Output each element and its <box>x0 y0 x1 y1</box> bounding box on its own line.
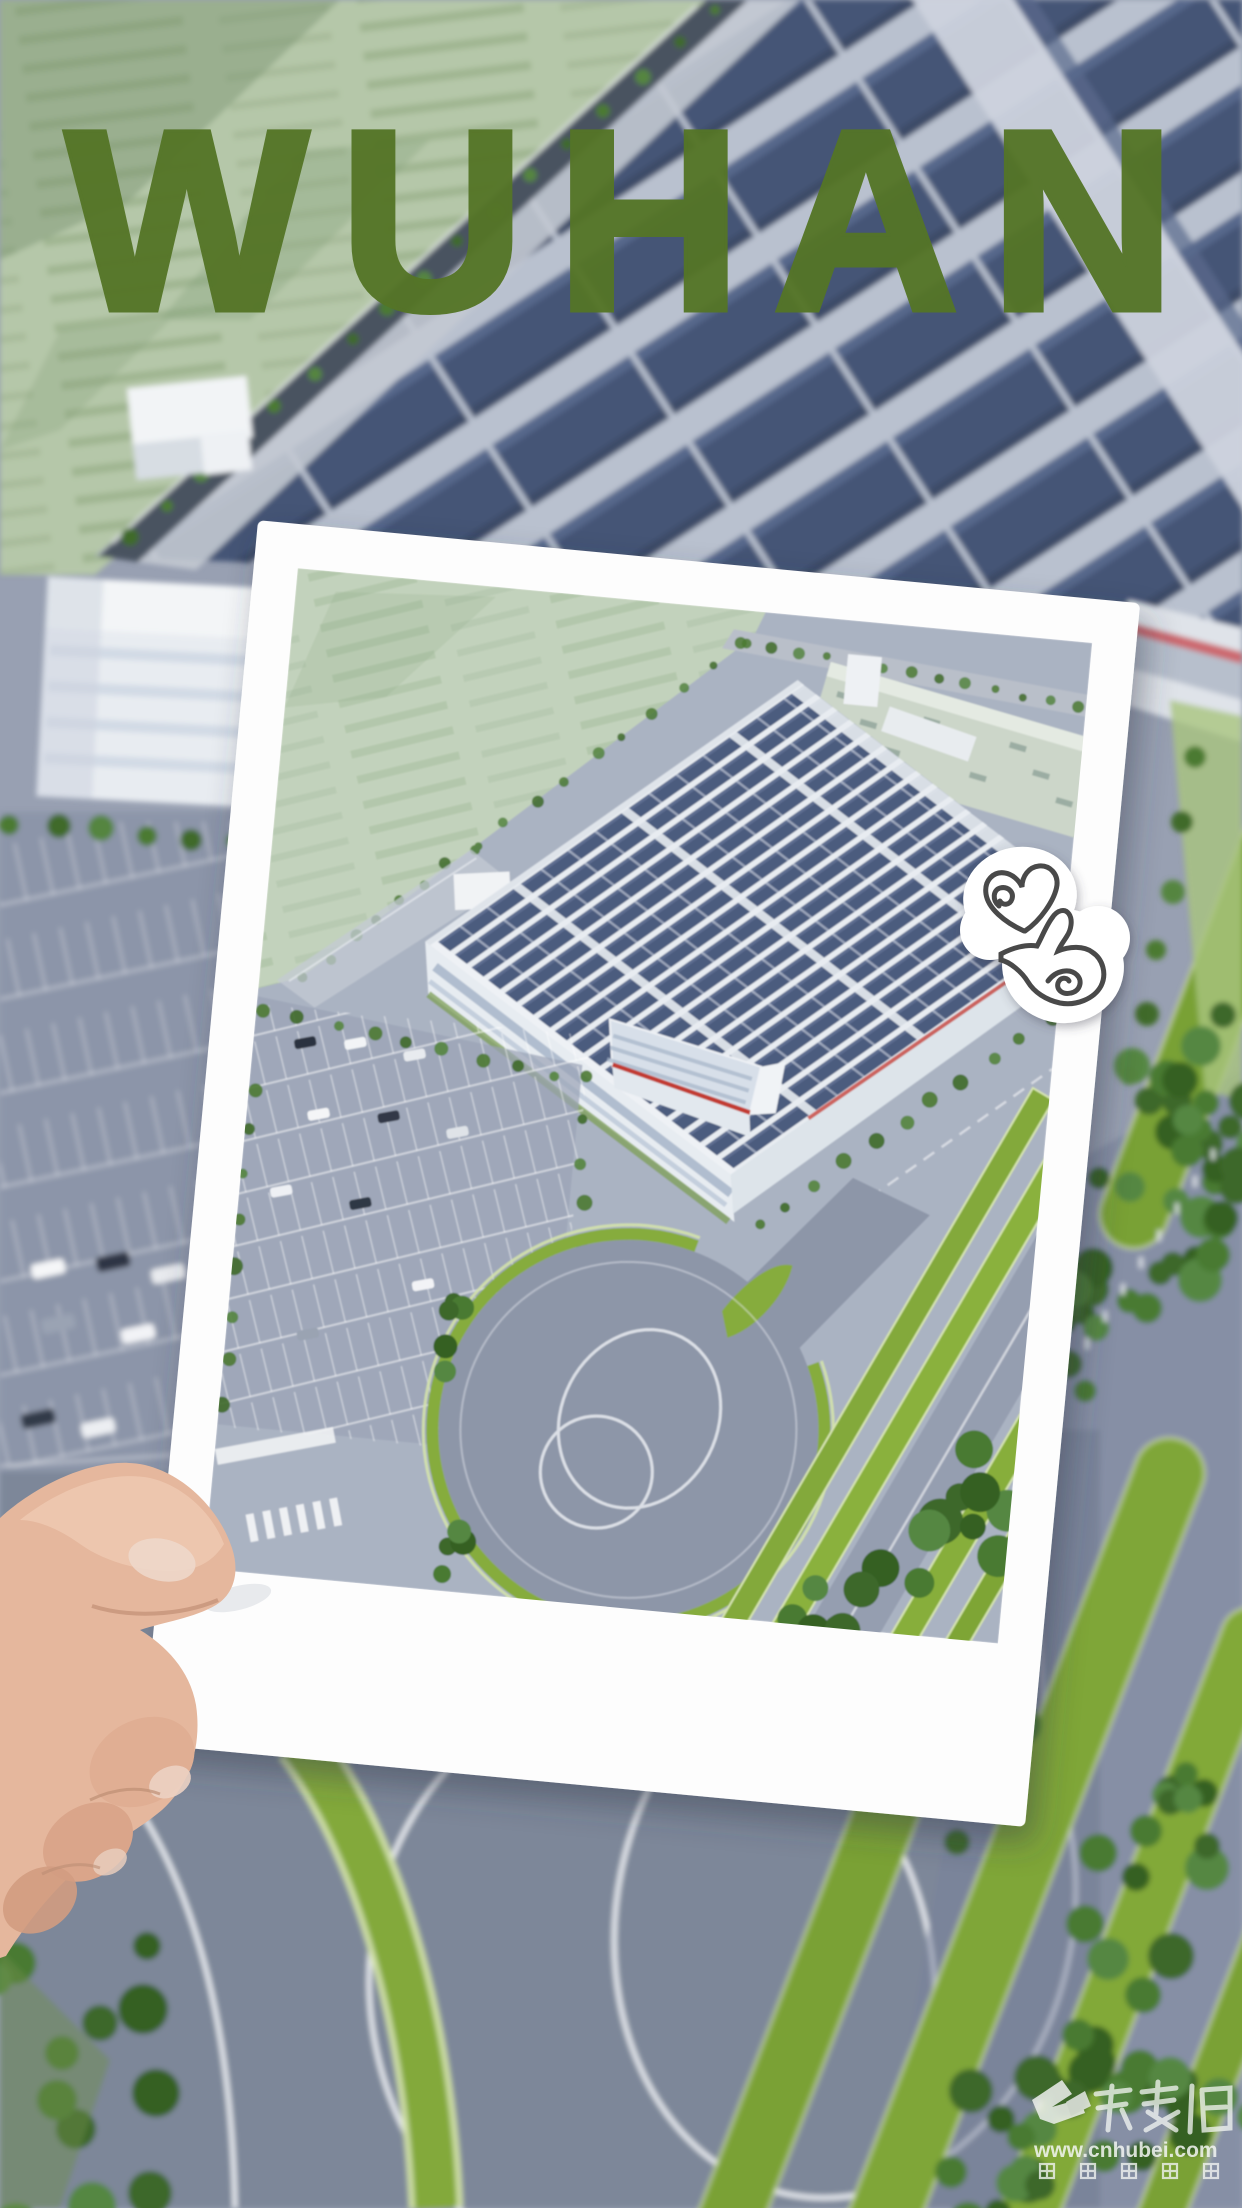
svg-text:www.cnhubei.com: www.cnhubei.com <box>1033 2139 1218 2162</box>
svg-text:WUHAN: WUHAN <box>66 78 1207 364</box>
